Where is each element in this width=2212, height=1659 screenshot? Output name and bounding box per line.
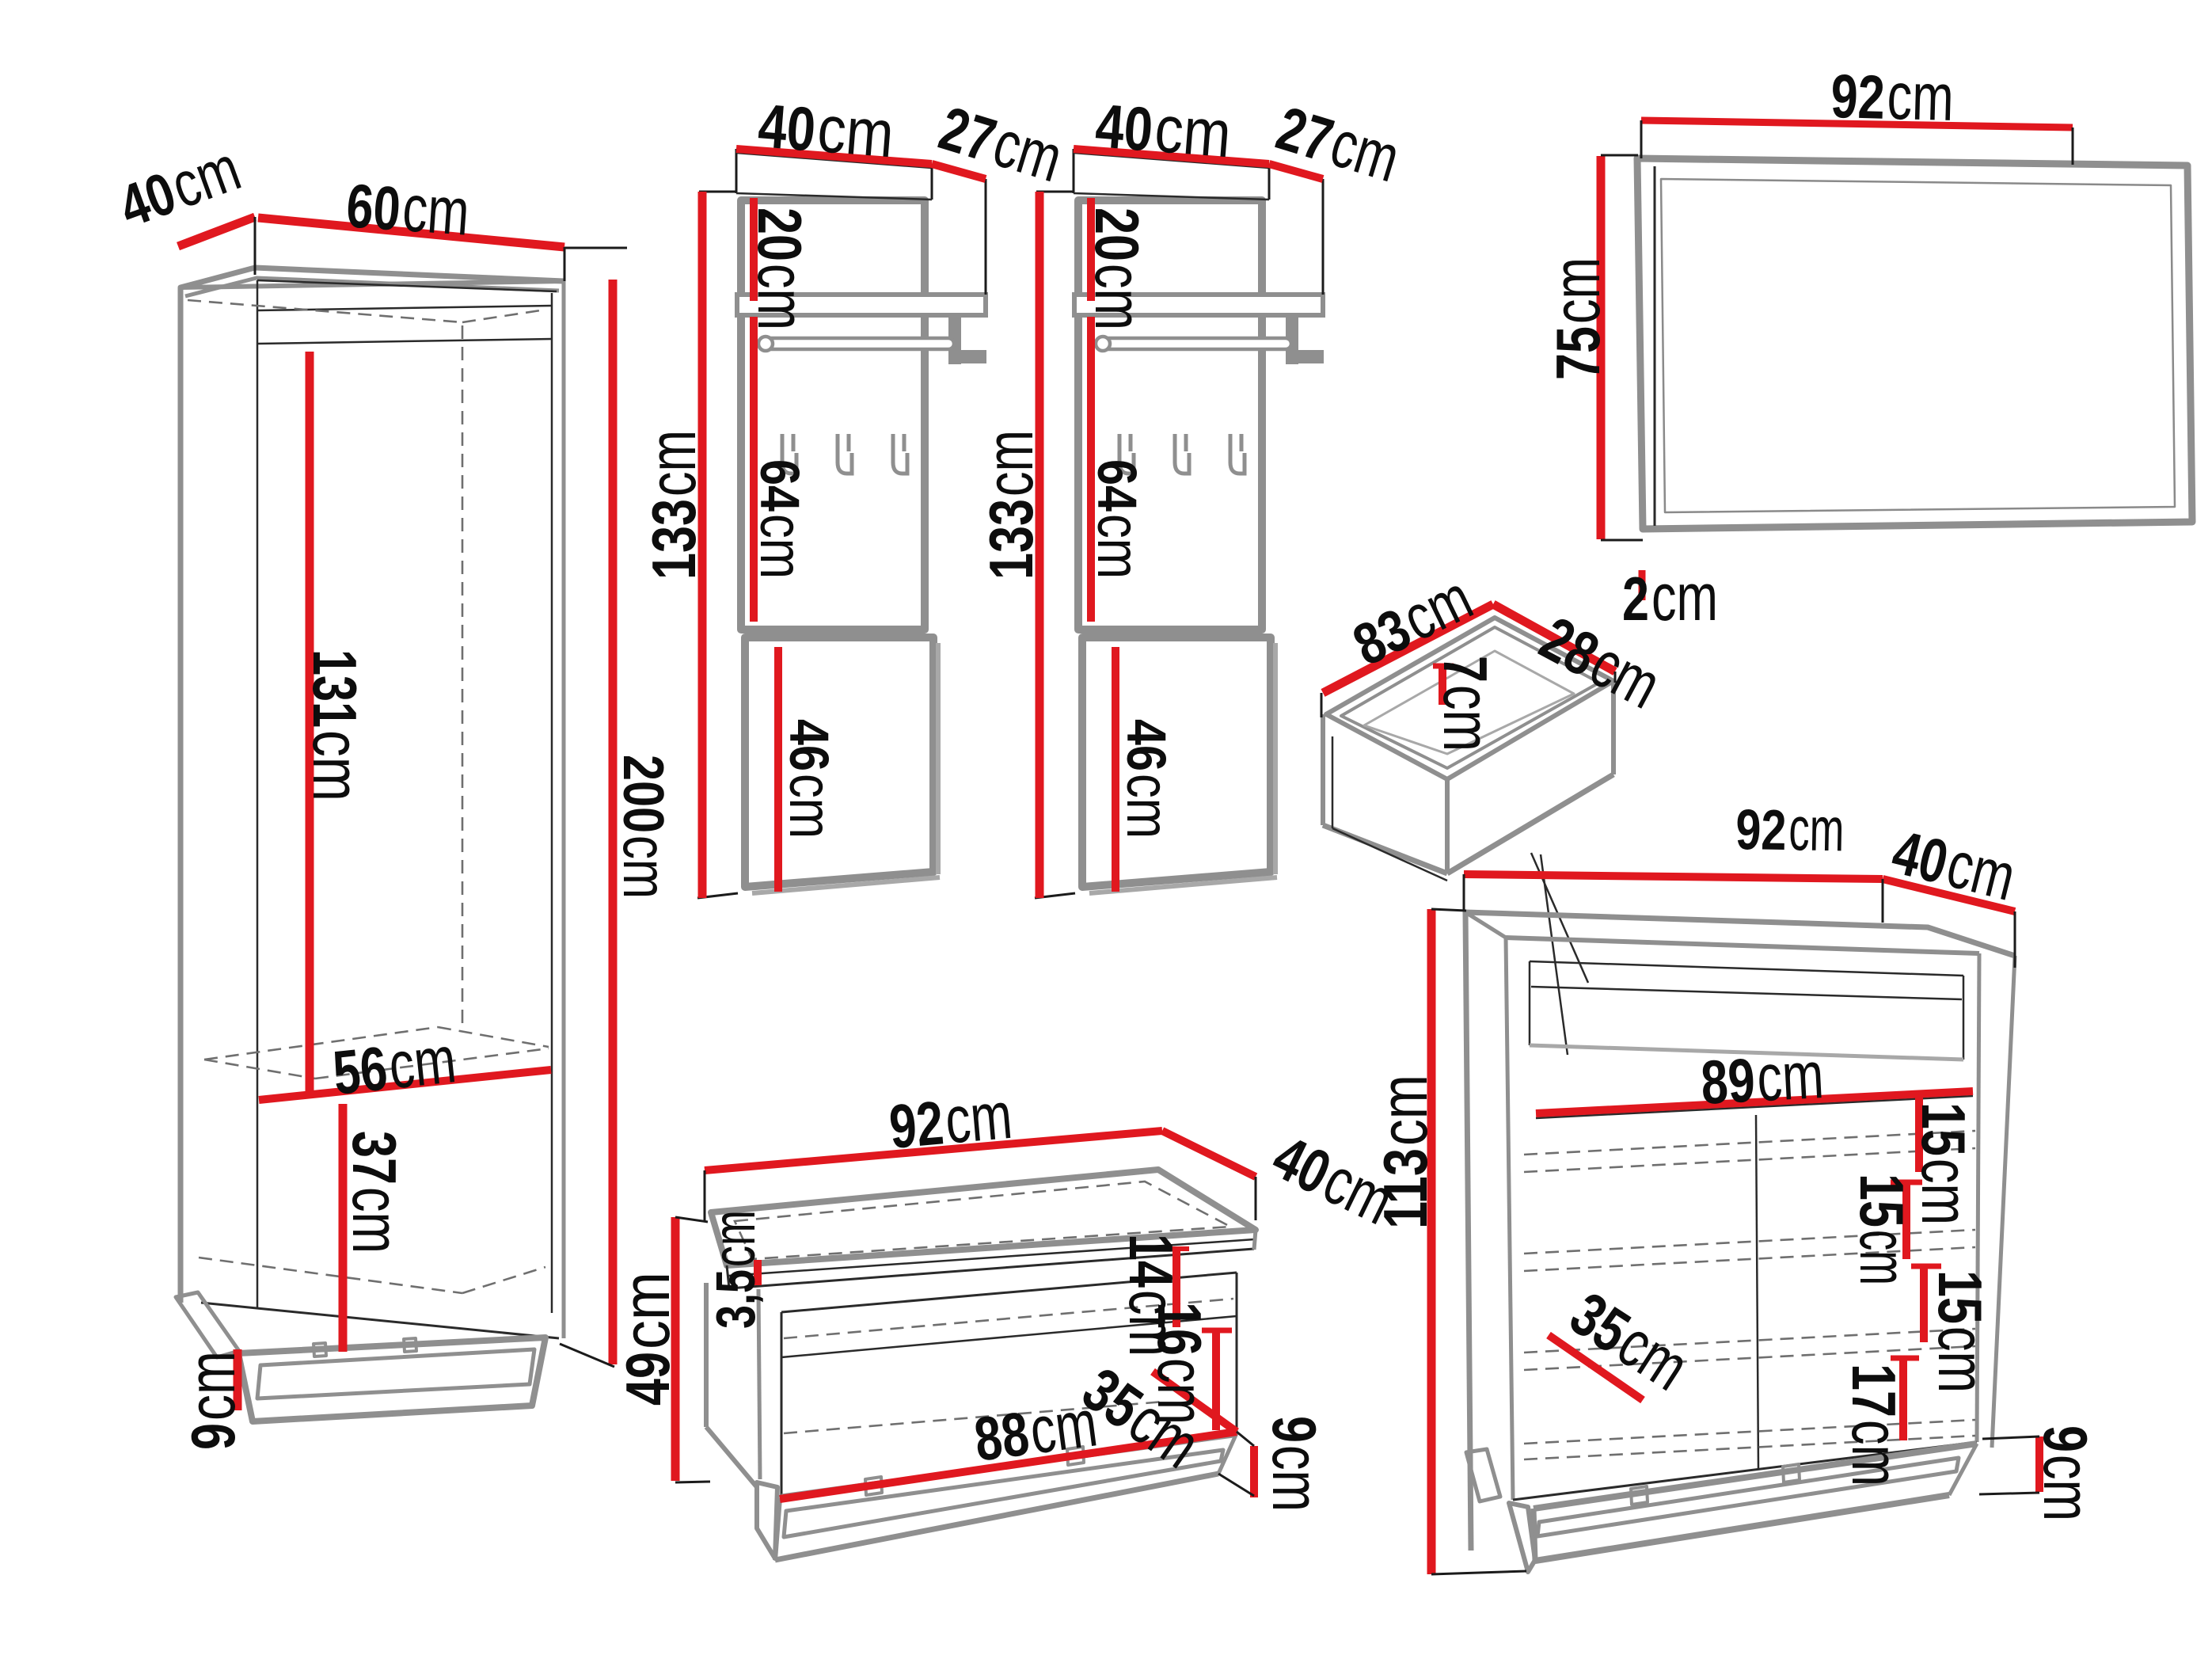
svg-text:88: 88 [971,1398,1033,1474]
svg-text:cm: cm [386,1022,459,1102]
svg-text:cm: cm [1887,59,1955,135]
svg-text:17: 17 [1839,1364,1909,1417]
svg-text:cm: cm [744,264,819,330]
svg-text:cm: cm [174,1351,249,1421]
svg-text:46: 46 [1116,719,1177,771]
svg-text:cm: cm [815,91,896,171]
svg-text:cm: cm [339,1187,413,1254]
svg-text:15: 15 [1925,1270,1995,1324]
svg-text:cm: cm [1144,1358,1218,1425]
svg-text:cm: cm [1085,514,1152,579]
svg-text:cm: cm [401,170,472,249]
svg-text:cm: cm [1846,1230,1921,1285]
svg-text:16: 16 [1145,1302,1214,1356]
svg-text:64: 64 [1086,459,1148,512]
svg-text:37: 37 [340,1131,409,1185]
svg-text:3,5: 3,5 [705,1269,766,1329]
svg-text:60: 60 [344,170,403,244]
svg-text:cm: cm [1755,1037,1826,1115]
svg-text:64: 64 [749,459,811,512]
svg-text:133: 133 [639,499,709,580]
svg-text:cm: cm [1430,685,1504,751]
svg-text:cm: cm [299,730,374,801]
svg-text:133: 133 [976,499,1046,580]
svg-text:92: 92 [887,1087,946,1162]
svg-text:15: 15 [1909,1102,1978,1156]
svg-text:cm: cm [747,514,815,579]
svg-text:9: 9 [178,1423,248,1450]
svg-text:9: 9 [2031,1425,2100,1452]
svg-text:cm: cm [972,430,1047,497]
svg-text:7: 7 [1431,656,1500,683]
svg-text:2: 2 [1622,564,1649,634]
svg-text:40: 40 [756,90,819,164]
svg-text:cm: cm [635,430,709,497]
svg-text:cm: cm [777,774,844,839]
svg-text:20: 20 [745,207,815,261]
svg-text:cm: cm [701,1210,768,1267]
svg-text:cm: cm [1651,560,1718,634]
svg-text:89: 89 [1699,1045,1757,1117]
svg-text:75: 75 [1543,326,1613,380]
svg-text:92: 92 [1830,61,1886,132]
svg-text:cm: cm [1539,257,1613,324]
svg-text:56: 56 [330,1033,391,1108]
svg-text:40: 40 [1093,90,1156,164]
svg-text:cm: cm [609,1272,683,1349]
svg-text:cm: cm [1925,1326,1999,1393]
svg-text:9: 9 [1260,1416,1329,1443]
svg-text:131: 131 [300,649,370,728]
svg-text:20: 20 [1082,207,1152,261]
svg-text:46: 46 [778,719,840,771]
svg-text:92: 92 [1735,798,1787,862]
svg-text:49: 49 [613,1352,682,1406]
svg-text:14: 14 [1116,1234,1186,1288]
svg-text:cm: cm [1838,1420,1913,1486]
svg-text:cm: cm [610,835,680,899]
svg-text:cm: cm [2030,1455,2104,1521]
svg-text:cm: cm [1908,1159,1982,1225]
svg-text:cm: cm [942,1078,1015,1158]
svg-text:cm: cm [1152,91,1233,171]
svg-text:cm: cm [1114,774,1181,839]
svg-text:cm: cm [1788,793,1845,864]
svg-text:15: 15 [1847,1174,1917,1227]
svg-text:cm: cm [1259,1445,1333,1512]
svg-text:cm: cm [1366,1075,1441,1146]
svg-text:cm: cm [1081,264,1156,330]
svg-text:200: 200 [611,755,675,833]
